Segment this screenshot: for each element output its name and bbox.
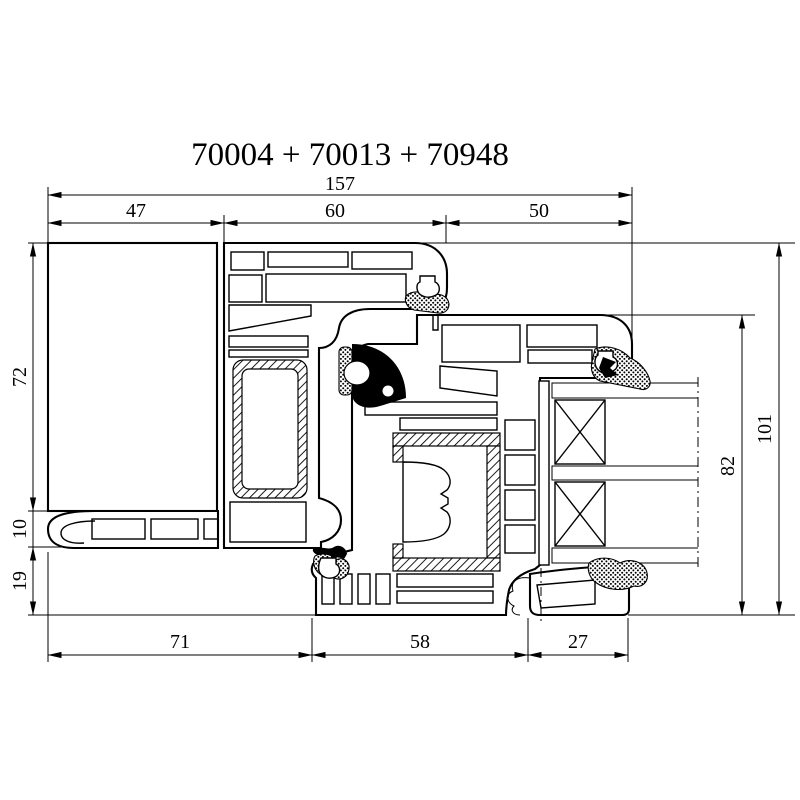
gasket-hole-round — [383, 386, 394, 397]
dim-label-82: 82 — [717, 456, 739, 476]
frame-steel-cavity — [242, 369, 298, 489]
dim-label-71: 71 — [170, 631, 190, 653]
gasket-hole-oval — [344, 361, 370, 385]
sash-steel-band — [487, 446, 500, 558]
sash-hardware-channel — [403, 462, 450, 542]
frame-sash-lower-seal-bulb — [319, 558, 340, 578]
dim-label-50: 50 — [529, 200, 549, 222]
sash-steel-band — [393, 433, 500, 446]
sash-steel-band — [393, 446, 403, 462]
sash-steel-band — [393, 558, 500, 571]
dim-label-47: 47 — [126, 200, 146, 222]
dim-label-60: 60 — [325, 200, 345, 222]
frame-extension-box — [48, 243, 217, 511]
profile-cross-section-drawing: 70004 + 70013 + 70948 — [0, 0, 800, 800]
dim-label-101: 101 — [754, 414, 776, 444]
dim-label-72: 72 — [9, 367, 31, 387]
sill-connector-profile — [48, 511, 218, 548]
dim-label-58: 58 — [410, 631, 430, 653]
drawing-title: 70004 + 70013 + 70948 — [191, 137, 509, 173]
sash-steel-band — [393, 544, 403, 558]
dim-label-19: 19 — [9, 571, 31, 591]
dim-label-157: 157 — [325, 173, 355, 195]
dim-label-10: 10 — [9, 519, 31, 539]
glazing-packer — [539, 381, 549, 565]
dim-label-27: 27 — [568, 631, 588, 653]
